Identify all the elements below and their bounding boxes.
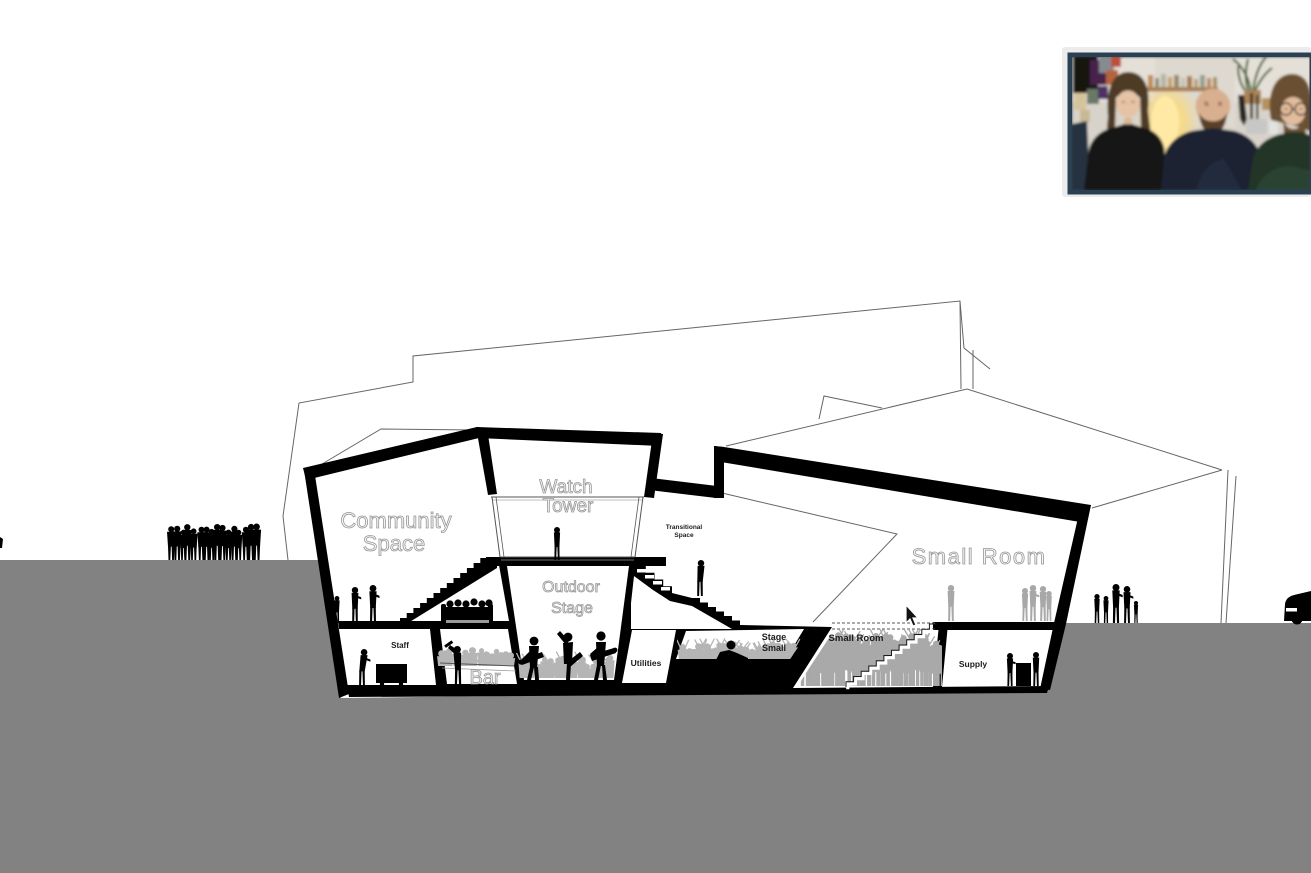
svg-text:Outdoor: Outdoor (542, 579, 600, 596)
svg-text:Stage: Stage (551, 600, 593, 617)
svg-text:Tower: Tower (543, 496, 594, 517)
svg-text:Space: Space (674, 532, 694, 539)
svg-text:Small Room: Small Room (912, 544, 1047, 569)
svg-text:Supply: Supply (959, 659, 988, 669)
svg-text:Space: Space (363, 531, 425, 556)
svg-text:Small Room: Small Room (829, 633, 884, 644)
svg-text:Watch: Watch (539, 477, 592, 498)
svg-text:Staff: Staff (391, 641, 409, 650)
svg-text:Stage: Stage (762, 632, 787, 642)
svg-text:Transitional: Transitional (666, 524, 703, 531)
svg-text:Utilities: Utilities (631, 658, 662, 668)
svg-text:Small: Small (762, 643, 786, 653)
svg-text:Community: Community (340, 508, 451, 533)
svg-text:Bar: Bar (469, 667, 500, 689)
